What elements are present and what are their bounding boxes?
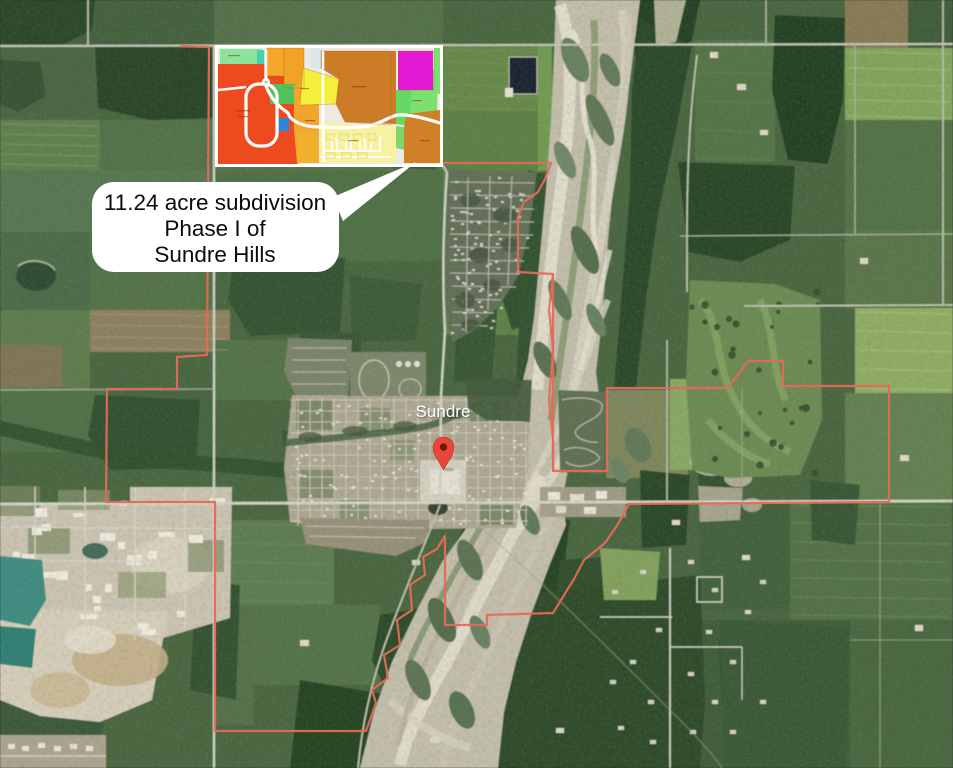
svg-text:Phase I of: Phase I of	[164, 216, 266, 241]
svg-text:Sundre Hills: Sundre Hills	[154, 242, 275, 267]
svg-text:11.24 acre subdivision: 11.24 acre subdivision	[104, 190, 326, 215]
svg-text:Sundre: Sundre	[416, 402, 471, 421]
